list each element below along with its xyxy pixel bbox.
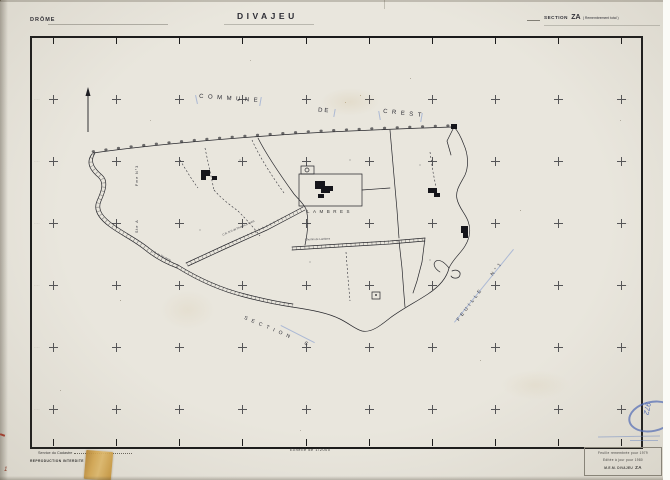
section-value: ZA bbox=[571, 14, 580, 21]
road-hatching bbox=[91, 154, 425, 306]
department-label: DRÔME bbox=[30, 18, 55, 24]
scan-bottom-shadow bbox=[0, 476, 670, 480]
stamp-series: M.E.M. DIVAJEU bbox=[604, 466, 633, 470]
issuer-text: Service du Cadastre bbox=[38, 451, 72, 455]
cadastral-map-scan: DRÔME DIVAJEU SECTION ZA ( Remembrement … bbox=[0, 0, 670, 480]
commune-title: DIVAJEU bbox=[237, 12, 298, 21]
stamp-section: ZA bbox=[635, 465, 642, 470]
stamp-line3: M.E.M. DIVAJEU ZA bbox=[585, 463, 661, 472]
adjacent-commune-word2: DE bbox=[318, 108, 331, 115]
margin-sheet-ref-bottom: Ste A bbox=[136, 219, 140, 233]
section-heading: SECTION ZA ( Remembrement total ) bbox=[544, 14, 619, 21]
parcel-boundaries bbox=[258, 127, 470, 331]
section-underline bbox=[544, 25, 660, 26]
section-label: SECTION bbox=[544, 15, 568, 20]
margin-sheet-ref-top: Fme N°3 bbox=[136, 165, 140, 186]
scan-top-shadow bbox=[0, 0, 670, 2]
scanner-edge bbox=[663, 0, 670, 480]
scan-left-shadow bbox=[0, 0, 8, 480]
title-underline bbox=[224, 24, 314, 25]
edition-stamp: Feuille remembrée pour 1979 Editée à jou… bbox=[584, 447, 662, 476]
department-underline bbox=[48, 24, 168, 25]
stamp-line2: Editée à jour pour 1980 bbox=[585, 457, 661, 464]
locality-label: LAMBRES bbox=[307, 210, 353, 215]
road-name-2: Chemin de Lambres bbox=[305, 238, 330, 242]
commune-boundary bbox=[93, 126, 453, 154]
north-arrow bbox=[86, 87, 91, 132]
stamp-line1: Feuille remembrée pour 1979 bbox=[585, 450, 661, 457]
scale-label: Echelle de 1/2000 bbox=[290, 449, 331, 453]
section-dash bbox=[527, 20, 540, 21]
blue-pencil-line-bottom2 bbox=[630, 440, 658, 441]
corner-handwritten-mark: 1 bbox=[4, 467, 7, 473]
reproduction-notice: REPRODUCTION INTERDITE bbox=[30, 460, 84, 463]
map-linework bbox=[30, 36, 639, 445]
section-note: ( Remembrement total ) bbox=[583, 16, 619, 20]
